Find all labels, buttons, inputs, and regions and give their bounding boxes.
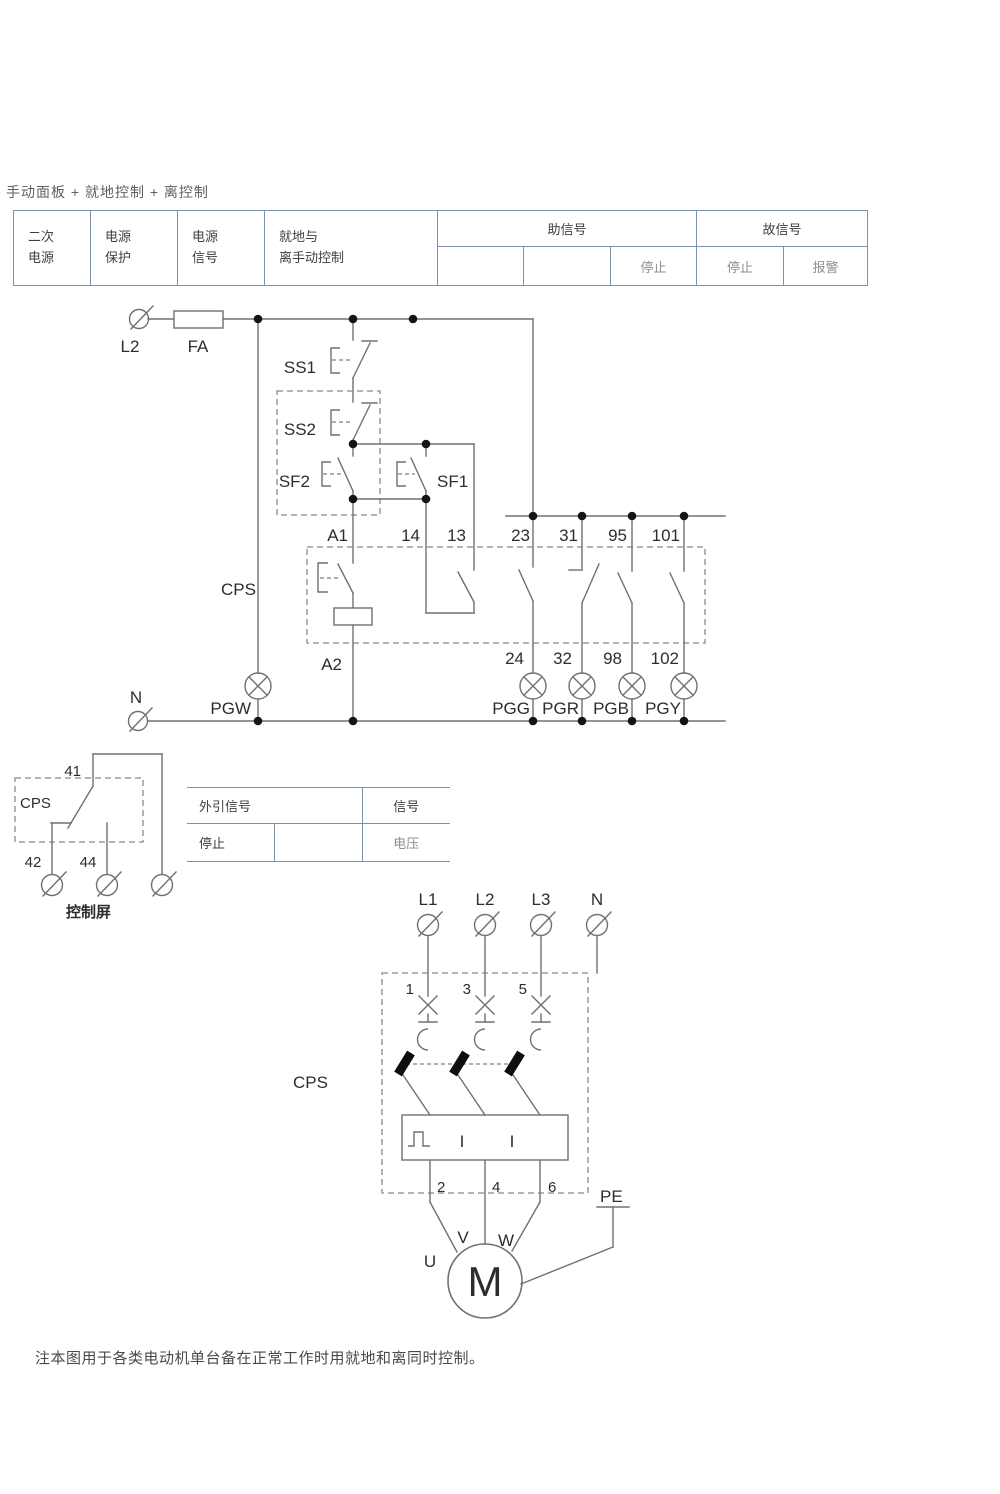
switch-ss2 [331, 403, 377, 440]
cps-pole-1 [403, 936, 437, 1115]
label-sf2: SF2 [279, 472, 310, 491]
label-sf1: SF1 [437, 472, 468, 491]
changeover-contact-41 [51, 786, 93, 828]
lamp-pgb [619, 673, 645, 699]
cps-contactor-box [307, 547, 705, 643]
label-ss2: SS2 [284, 420, 316, 439]
power-circuit: I I M L1 L2 L3 N 1 [293, 890, 629, 1318]
label-n: N [130, 688, 142, 707]
label-41: 41 [64, 763, 81, 780]
label-101: 101 [652, 526, 680, 545]
label-32: 32 [553, 649, 572, 668]
label-ss1: SS1 [284, 358, 316, 377]
terminal-44-symbol [97, 872, 122, 896]
label-pgg: PGG [492, 699, 530, 718]
label-power-l1: L1 [419, 890, 438, 909]
circuit-svg: L2 FA SS1 SS2 SF2 SF1 CPS A1 14 13 23 31… [0, 0, 1000, 1494]
label-pgy: PGY [645, 699, 681, 718]
label-44: 44 [80, 854, 97, 871]
motor-letter: M [468, 1258, 503, 1305]
label-v: V [457, 1228, 469, 1247]
label-l2: L2 [121, 337, 140, 356]
label-98: 98 [603, 649, 622, 668]
label-power-cps: CPS [293, 1073, 328, 1092]
label-w: W [498, 1231, 514, 1250]
lamp-pgy [671, 673, 697, 699]
terminal-l2-symbol [130, 306, 154, 329]
label-a2: A2 [321, 655, 342, 674]
control-circuit: L2 FA SS1 SS2 SF2 SF1 CPS A1 14 13 23 31… [121, 306, 725, 731]
label-31: 31 [559, 526, 578, 545]
label-pole-1: 1 [406, 981, 414, 998]
terminal-l3-power [531, 912, 556, 936]
cps-coil [334, 608, 372, 625]
button-sf2 [322, 458, 353, 491]
button-sf1 [397, 444, 426, 491]
label-23: 23 [511, 526, 530, 545]
label-42: 42 [25, 854, 42, 871]
cps-mechanism-contact [318, 563, 353, 593]
control-panel-circuit: 41 CPS 42 44 控制屏 [15, 754, 176, 921]
pe-connection [521, 1207, 629, 1284]
junction-dots [254, 315, 689, 726]
label-cps-ctrl: CPS [221, 580, 256, 599]
trip-i-mark-2: I [510, 1132, 515, 1151]
label-102: 102 [651, 649, 679, 668]
label-95: 95 [608, 526, 627, 545]
lamp-pgw [245, 673, 271, 699]
switch-ss1 [331, 319, 377, 378]
label-panel-cps: CPS [20, 795, 51, 812]
terminal-41-symbol [152, 872, 177, 896]
label-pgw: PGW [210, 699, 251, 718]
trip-i-mark-1: I [460, 1132, 465, 1151]
label-power-l3: L3 [532, 890, 551, 909]
motor-symbol: M [448, 1244, 522, 1318]
label-pe: PE [600, 1187, 623, 1206]
label-pole-4: 4 [492, 1179, 500, 1196]
label-13: 13 [447, 526, 466, 545]
pulse-trip-icon [408, 1132, 430, 1146]
terminal-n-power [587, 912, 612, 936]
cps-pole-3 [513, 936, 550, 1115]
label-24: 24 [505, 649, 524, 668]
label-pole-6: 6 [548, 1179, 556, 1196]
trip-unit-box [402, 1115, 568, 1160]
terminal-n-symbol [129, 708, 153, 731]
cps-pole-2 [458, 936, 494, 1115]
label-power-l2: L2 [476, 890, 495, 909]
schematic-page: 手动面板 + 就地控制 + 离控制 二次 电源 电源 保护 电源 信号 就地与 … [0, 0, 1000, 1494]
label-a1: A1 [327, 526, 348, 545]
label-pole-5: 5 [519, 981, 527, 998]
lamp-pgg [520, 673, 546, 699]
label-pole-3: 3 [463, 981, 471, 998]
label-fa: FA [188, 337, 209, 356]
label-u: U [424, 1252, 436, 1271]
label-power-n: N [591, 890, 603, 909]
fuse-fa-symbol [174, 311, 223, 328]
label-pgb: PGB [593, 699, 629, 718]
label-pgr: PGR [542, 699, 579, 718]
terminal-l2-power [475, 912, 500, 936]
local-station-box [277, 391, 380, 515]
label-control-panel: 控制屏 [66, 903, 111, 921]
lamp-pgr [569, 673, 595, 699]
label-pole-2: 2 [437, 1179, 445, 1196]
terminal-42-symbol [42, 872, 67, 896]
terminal-l1-power [418, 912, 443, 936]
label-14: 14 [401, 526, 420, 545]
